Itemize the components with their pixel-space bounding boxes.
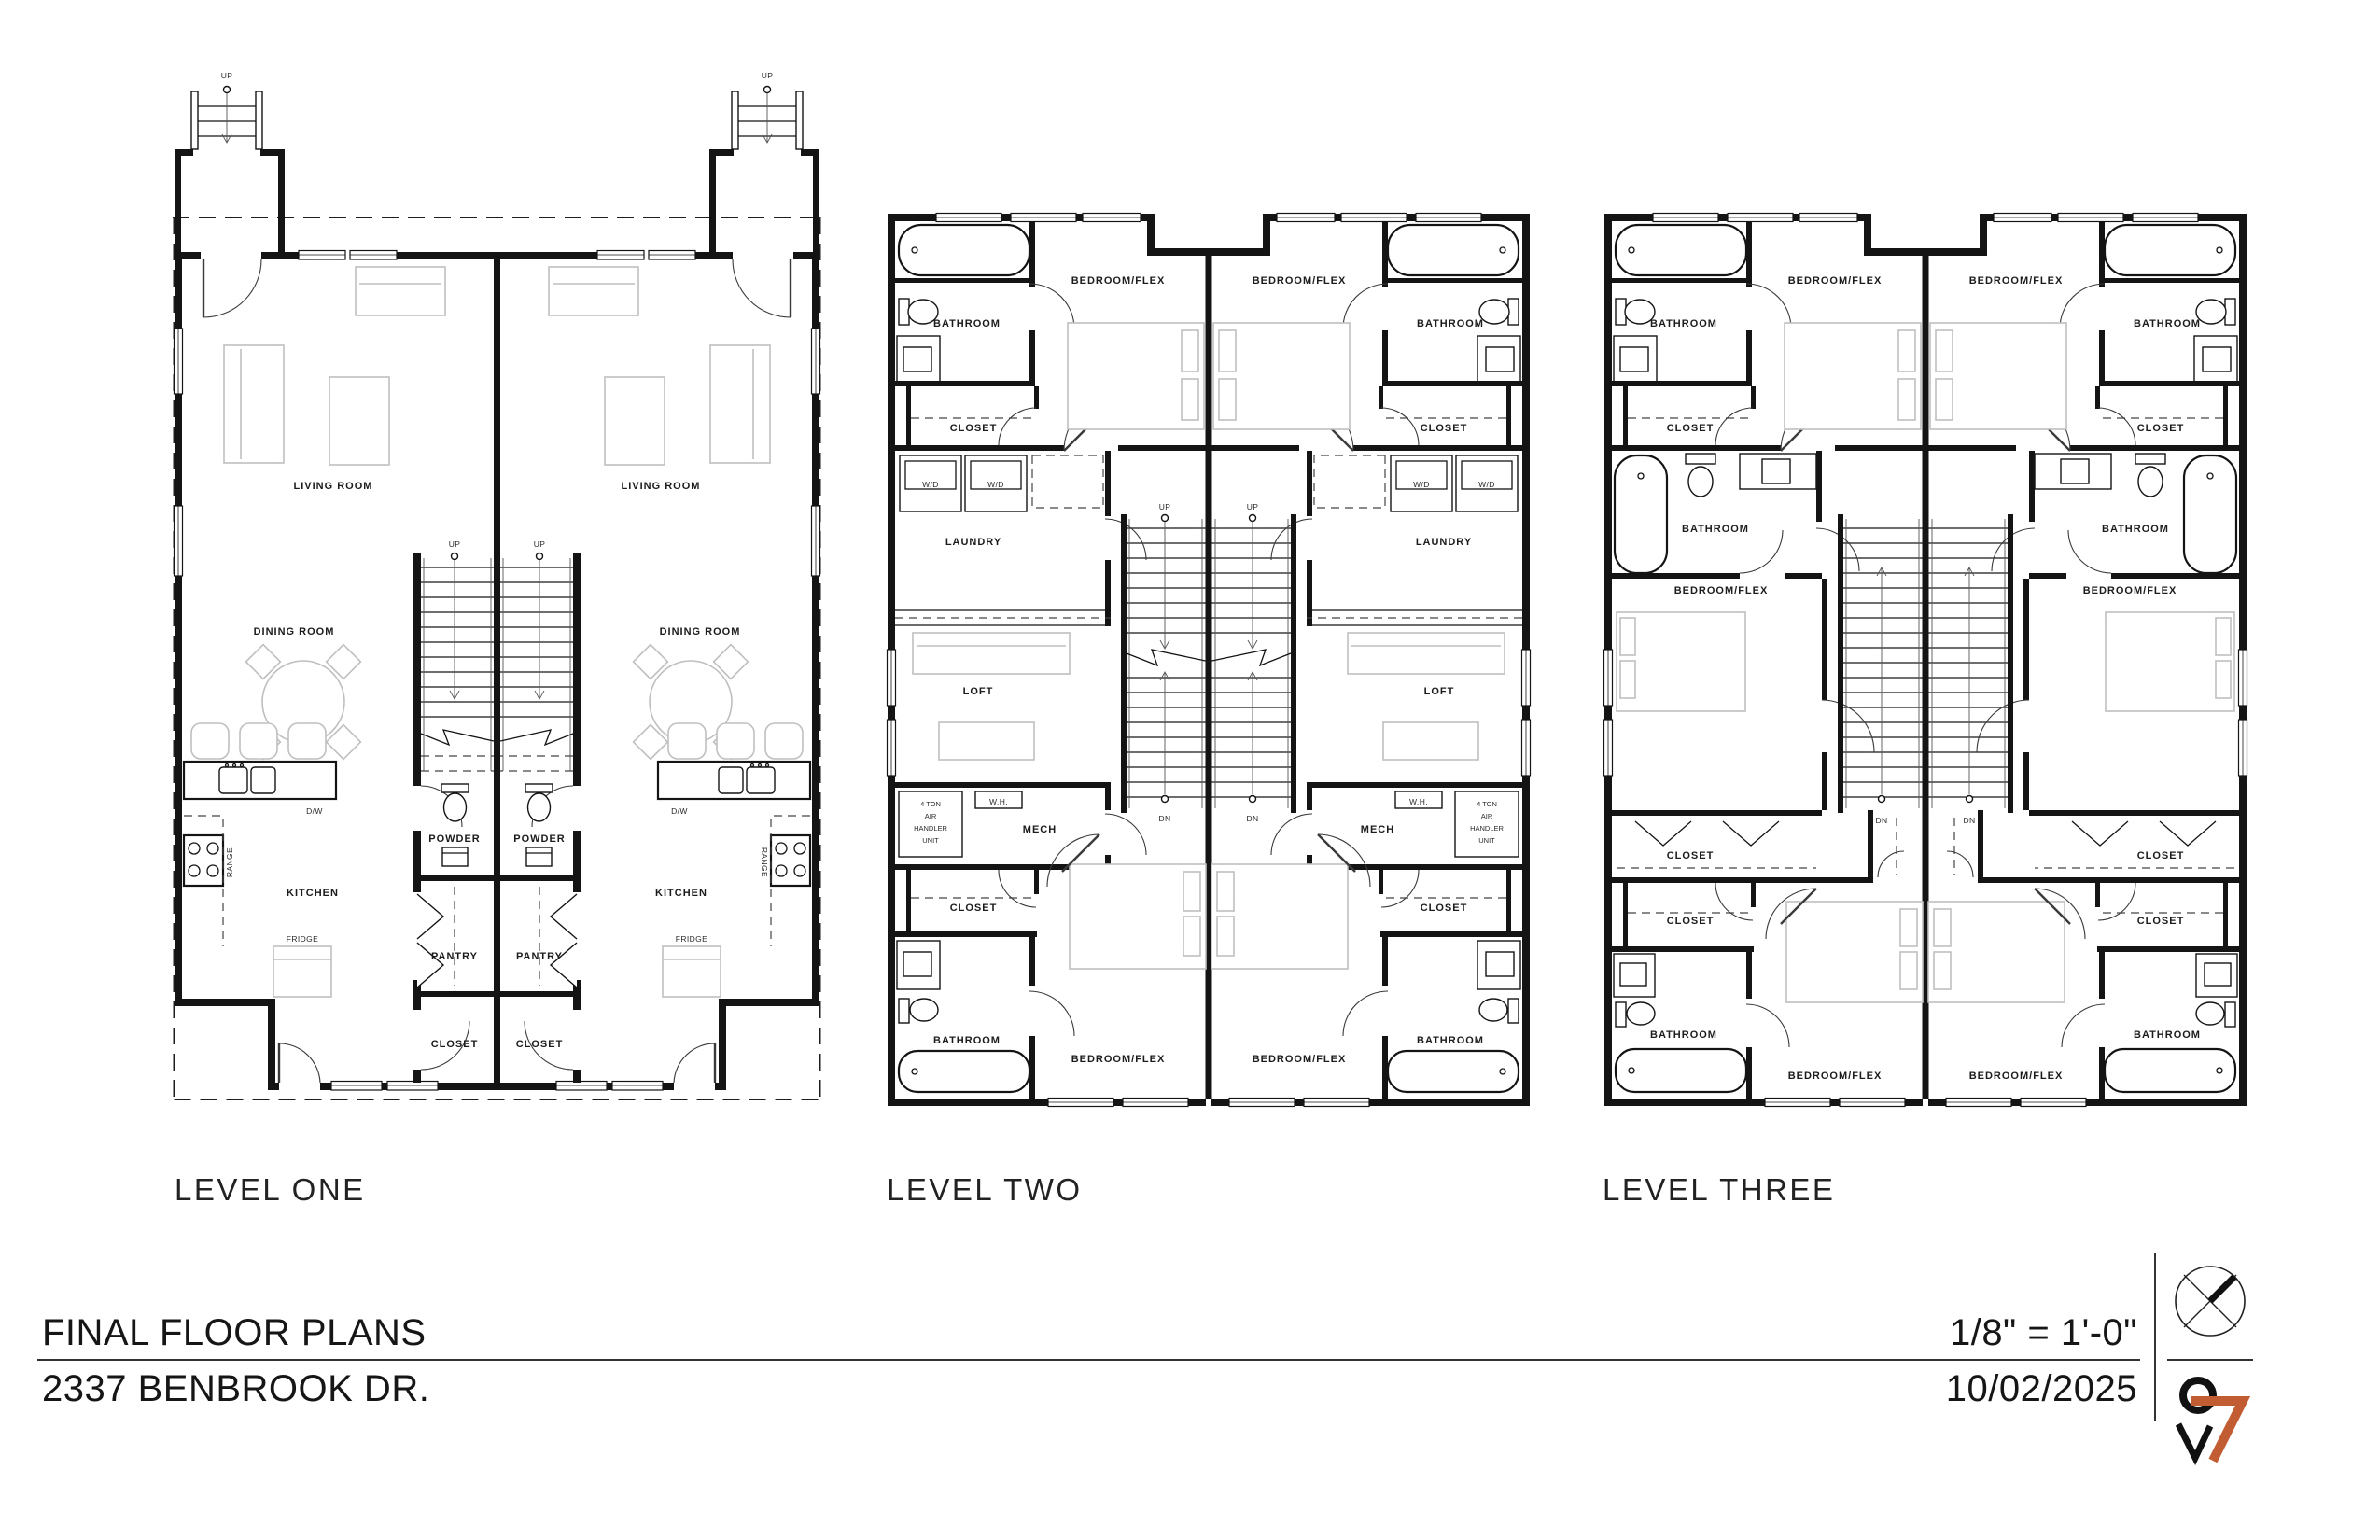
room-label-closet-tr: CLOSET xyxy=(1421,423,1468,434)
room-label-bedroomflex-tr: BEDROOM/FLEX xyxy=(1969,275,2064,287)
room-label-powder-right: POWDER xyxy=(513,833,566,845)
floor-plan-level-one: LIVING ROOM DINING ROOM UP UP POWDER D/W… xyxy=(173,49,821,1161)
firm-logo-icon: 9 7 xyxy=(2169,1372,2253,1465)
stair-up-label-right: UP xyxy=(1247,502,1259,511)
level-three-unit-graphics xyxy=(1604,214,1926,1107)
room-label-pantry-left: PANTRY xyxy=(431,951,478,962)
ahu-label-right-4: UNIT xyxy=(1478,836,1495,845)
stair-dn-label-right: DN xyxy=(1246,814,1258,823)
room-label-living-left: LIVING ROOM xyxy=(294,481,373,492)
range-label-left: RANGE xyxy=(225,847,234,877)
ahu-label-left-3: HANDLER xyxy=(914,824,947,833)
floor-plan-sheet: { "document": { "title": "FINAL FLOOR PL… xyxy=(0,0,2380,1540)
dishwasher-label-left: D/W xyxy=(306,806,323,816)
room-label-bathroom-bl: BATHROOM xyxy=(933,1035,1001,1046)
level-two-label: LEVEL TWO xyxy=(887,1172,1083,1208)
stair-up-label-left: UP xyxy=(221,71,233,80)
wd-label-l1: W/D xyxy=(922,480,939,489)
range-label-right: RANGE xyxy=(760,847,769,877)
room-label-closet-tl: CLOSET xyxy=(1667,423,1715,434)
room-label-closet-tr: CLOSET xyxy=(2137,423,2185,434)
room-label-closet-right: CLOSET xyxy=(516,1039,564,1050)
room-label-pantry-right: PANTRY xyxy=(516,951,563,962)
ahu-label-right-2: AIR xyxy=(1481,812,1493,820)
room-label-bathroom-tl: BATHROOM xyxy=(933,318,1001,329)
level-one-label: LEVEL ONE xyxy=(175,1172,366,1208)
room-label-living-right: LIVING ROOM xyxy=(622,481,701,492)
north-arrow-icon xyxy=(2171,1262,2249,1340)
stair-dn-label-right: DN xyxy=(1963,816,1975,825)
room-label-bathroom-br: BATHROOM xyxy=(2134,1029,2201,1041)
ahu-label-left-1: 4 TON xyxy=(920,800,941,808)
room-label-closet-bl: CLOSET xyxy=(1667,916,1715,927)
logo-rule xyxy=(2167,1359,2253,1361)
room-label-bedroomflex-bl: BEDROOM/FLEX xyxy=(1071,1054,1166,1065)
room-label-laundry-right: LAUNDRY xyxy=(1416,537,1472,548)
room-label-bedroomflex-tl: BEDROOM/FLEX xyxy=(1071,275,1166,287)
room-label-dining-right: DINING ROOM xyxy=(660,626,741,637)
room-label-bathroom-tl: BATHROOM xyxy=(1650,318,1717,329)
wd-label-r2: W/D xyxy=(1413,480,1430,489)
room-label-loft-left: LOFT xyxy=(963,686,994,697)
stair-up-label-right: UP xyxy=(762,71,774,80)
dishwasher-label-right: D/W xyxy=(671,806,688,816)
room-label-loft-right: LOFT xyxy=(1424,686,1455,697)
titleblock-rule xyxy=(37,1359,2140,1361)
room-label-bedroomflex-tl: BEDROOM/FLEX xyxy=(1788,275,1883,287)
sheet-title: FINAL FLOOR PLANS xyxy=(42,1312,427,1354)
room-label-closet-tl: CLOSET xyxy=(950,423,998,434)
stair-up-label-int-left: UP xyxy=(449,539,461,549)
room-label-dining-left: DINING ROOM xyxy=(254,626,335,637)
room-label-closet-mr: CLOSET xyxy=(2137,850,2185,861)
room-label-bathroom-ml: BATHROOM xyxy=(1682,524,1749,535)
wd-label-r1: W/D xyxy=(1478,480,1495,489)
room-label-closet-left: CLOSET xyxy=(431,1039,479,1050)
room-label-mech-right: MECH xyxy=(1361,824,1394,835)
room-label-bathroom-bl: BATHROOM xyxy=(1650,1029,1717,1041)
ahu-label-left-2: AIR xyxy=(925,812,937,820)
titleblock-divider xyxy=(2154,1253,2156,1421)
room-label-laundry-left: LAUNDRY xyxy=(945,537,1001,548)
room-label-bathroom-br: BATHROOM xyxy=(1417,1035,1484,1046)
room-label-closet-br: CLOSET xyxy=(2137,916,2185,927)
stair-up-label-int-right: UP xyxy=(534,539,546,549)
ahu-label-right-3: HANDLER xyxy=(1470,824,1504,833)
stair-dn-label-left: DN xyxy=(1875,816,1887,825)
room-label-bathroom-tr: BATHROOM xyxy=(1417,318,1484,329)
room-label-kitchen-left: KITCHEN xyxy=(287,888,339,899)
fridge-label-right: FRIDGE xyxy=(676,934,708,944)
room-label-bedroomflex-br: BEDROOM/FLEX xyxy=(1969,1071,2064,1082)
level-three-label: LEVEL THREE xyxy=(1603,1172,1835,1208)
wh-label-left: W.H. xyxy=(989,797,1008,806)
floor-plan-level-three: BEDROOM/FLEX BATHROOM CLOSET BATHROOM BE… xyxy=(1602,211,2249,1109)
room-label-bedroomflex-bl: BEDROOM/FLEX xyxy=(1788,1071,1883,1082)
level-one-unit-graphics xyxy=(175,87,497,1092)
room-label-bedroomflex-mr: BEDROOM/FLEX xyxy=(2083,585,2177,596)
room-label-closet-ml: CLOSET xyxy=(1667,850,1715,861)
room-label-bedroomflex-br: BEDROOM/FLEX xyxy=(1253,1054,1347,1065)
ahu-label-right-1: 4 TON xyxy=(1477,800,1497,808)
stair-up-label-left: UP xyxy=(1159,502,1171,511)
room-label-bathroom-tr: BATHROOM xyxy=(2134,318,2201,329)
wh-label-right: W.H. xyxy=(1409,797,1428,806)
room-label-powder-left: POWDER xyxy=(428,833,481,845)
room-label-mech-left: MECH xyxy=(1023,824,1057,835)
room-label-closet-bl: CLOSET xyxy=(950,903,998,914)
sheet-address: 2337 BENBROOK DR. xyxy=(42,1368,429,1410)
room-label-bedroomflex-ml: BEDROOM/FLEX xyxy=(1674,585,1769,596)
level-two-unit-graphics xyxy=(888,214,1210,1107)
fridge-label-left: FRIDGE xyxy=(287,934,319,944)
wd-label-l2: W/D xyxy=(987,480,1004,489)
room-label-bathroom-mr: BATHROOM xyxy=(2102,524,2169,535)
sheet-scale: 1/8" = 1'-0" xyxy=(1437,1312,2137,1354)
room-label-closet-br: CLOSET xyxy=(1421,903,1468,914)
room-label-kitchen-right: KITCHEN xyxy=(655,888,707,899)
room-label-bedroomflex-tr: BEDROOM/FLEX xyxy=(1253,275,1347,287)
sheet-date: 10/02/2025 xyxy=(1437,1368,2137,1410)
floor-plan-level-two: BEDROOM/FLEX BATHROOM CLOSET W/D W/D LAU… xyxy=(885,211,1533,1109)
ahu-label-left-4: UNIT xyxy=(922,836,939,845)
stair-dn-label-left: DN xyxy=(1158,814,1170,823)
